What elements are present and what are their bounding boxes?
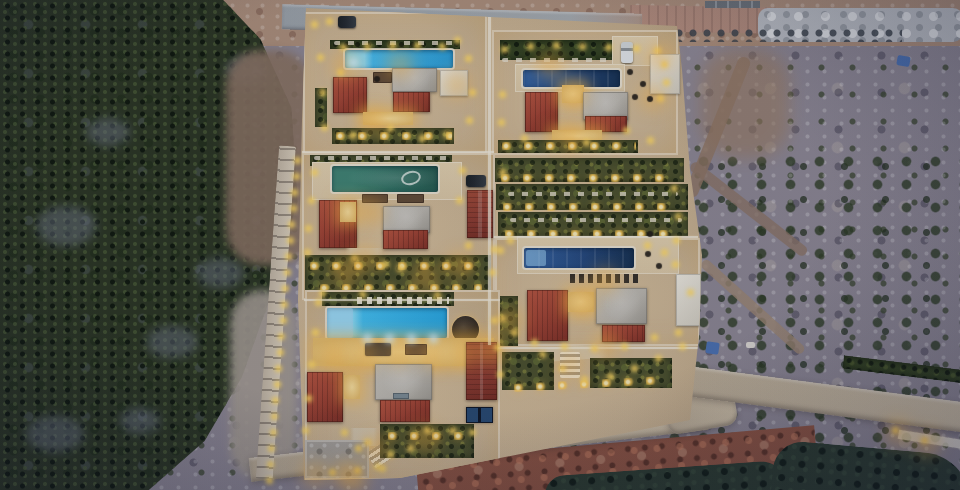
dirt-slope: [226, 50, 312, 265]
dividing-wall: [302, 151, 494, 153]
villa-top-right-hedge: [500, 40, 613, 60]
stone-paver-row: [502, 58, 614, 62]
villa-top-left-garden-strip: [315, 88, 327, 127]
dividing-wall: [494, 236, 698, 238]
garden-lights: [310, 262, 486, 270]
villa-top-left-red-roof-2: [393, 92, 430, 112]
garden-lights: [388, 432, 470, 440]
lit-courtyard: [344, 375, 360, 399]
sun-mat: [362, 194, 388, 203]
dividing-wall: [498, 347, 698, 349]
red-outbuilding: [466, 342, 497, 400]
stone-paver-row: [314, 156, 448, 160]
aerial-photo: [0, 0, 960, 490]
pool-entry-steps: [526, 250, 546, 266]
garden-lights: [502, 142, 636, 150]
stone-paver-row: [334, 41, 456, 45]
rooftop-ac-unit: [393, 393, 409, 399]
rock-outcrop: [196, 258, 244, 288]
villa-top-left-red-roof: [333, 77, 367, 113]
stone-row: [510, 218, 682, 222]
lit-courtyard: [340, 202, 356, 222]
stone-row: [508, 192, 678, 196]
blue-tarp: [896, 55, 911, 67]
villa-complex: [280, 0, 710, 490]
lower-garden: [380, 424, 474, 458]
villa-top-left-pool: [345, 50, 453, 68]
stacked-blocks: [705, 1, 760, 8]
garden-lights: [501, 174, 671, 182]
sun-loungers-row: [570, 274, 642, 283]
dividing-wall: [488, 12, 491, 345]
rock-outcrop: [120, 408, 160, 434]
white-car: [621, 42, 633, 63]
villa-top-left-gray-roof: [392, 68, 437, 92]
solar-panels: [466, 407, 493, 423]
white-debris: [746, 342, 755, 348]
sun-loungers: [405, 344, 427, 355]
villa-middle-left-gray-roof: [383, 206, 430, 233]
white-pergola: [440, 70, 468, 96]
rock-outcrop: [26, 416, 84, 452]
villa-bottom-left-red-roof: [307, 372, 343, 422]
villa-middle-right-gray-roof: [596, 288, 647, 324]
lit-courtyard: [562, 85, 584, 103]
lit-terrace: [363, 112, 413, 125]
white-garage: [676, 274, 701, 326]
dark-car: [466, 175, 486, 187]
construction-debris: [672, 28, 902, 42]
white-garage: [650, 54, 680, 94]
pool-entry-steps: [327, 308, 353, 338]
villa-middle-right-red-roof: [527, 290, 568, 341]
outdoor-table-set: [365, 343, 391, 356]
dividing-wall: [304, 299, 500, 301]
villa-middle-left-pool: [332, 166, 438, 192]
garden-lights: [336, 132, 452, 140]
rock-outcrop: [86, 118, 130, 146]
rock-outcrop: [146, 326, 198, 358]
seating-mat: [373, 72, 392, 83]
villa-top-right-red-roof: [525, 92, 558, 132]
lit-courtyard: [568, 292, 594, 312]
villa-middle-right-red-roof-2: [602, 325, 645, 342]
blue-tarp: [705, 341, 720, 355]
garden-stairway: [560, 352, 580, 378]
villa-bottom-left-red-roof-2: [380, 400, 430, 422]
dark-car: [338, 16, 356, 28]
garden-lights: [503, 203, 678, 211]
rock-outcrop: [36, 206, 96, 246]
villa-middle-left-red-roof-2: [383, 230, 428, 249]
sun-mat: [397, 194, 424, 203]
concrete-patio: [305, 440, 369, 478]
